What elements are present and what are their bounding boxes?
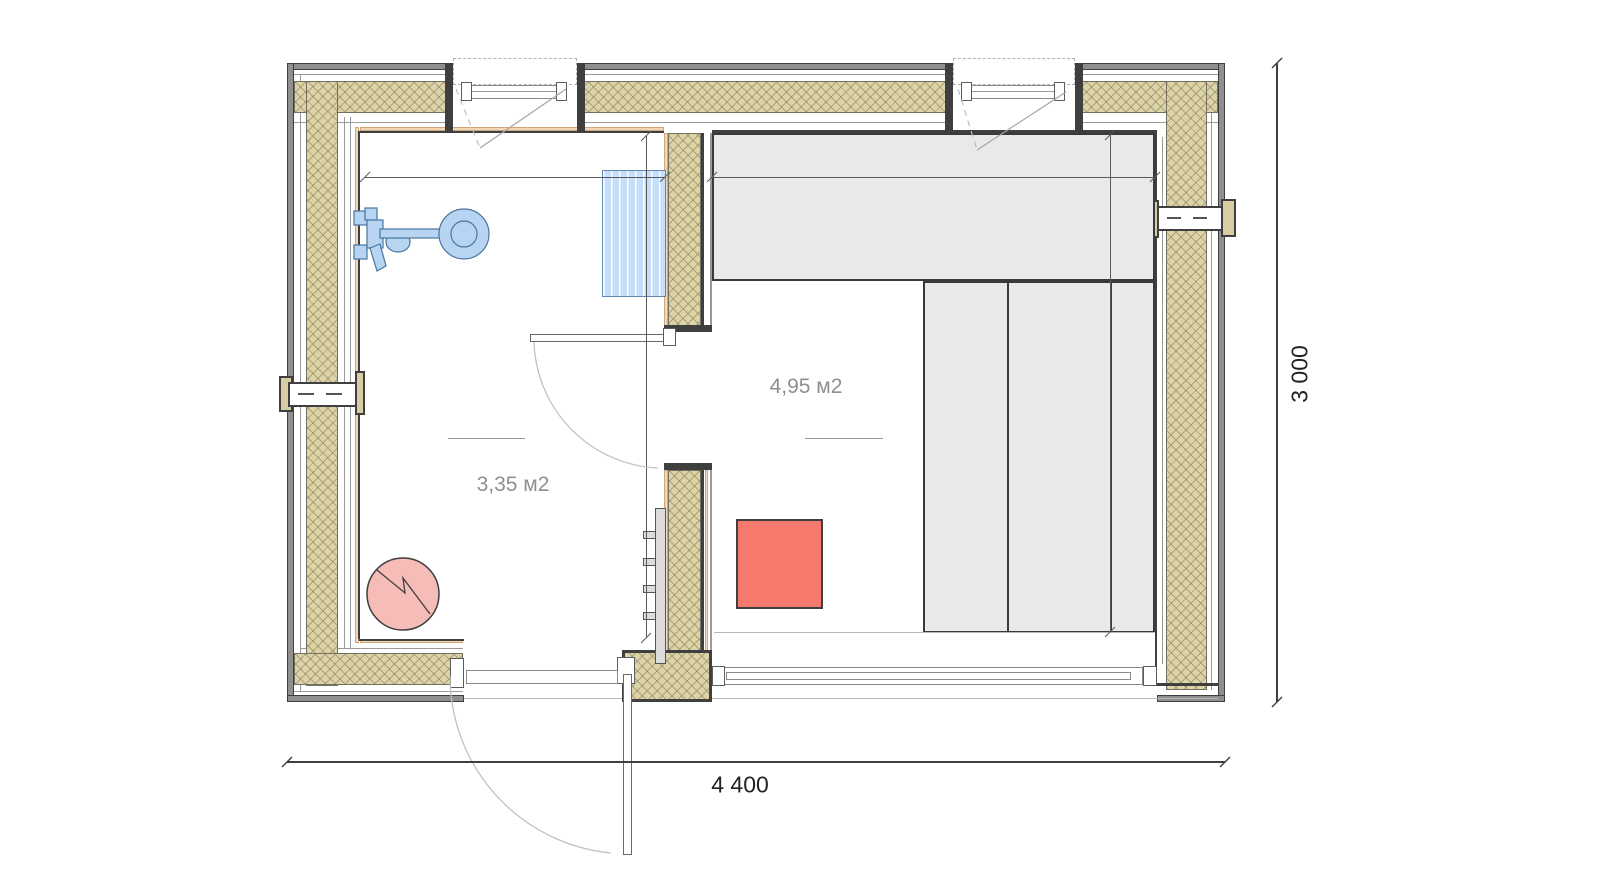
window-opening-dashed-line bbox=[958, 89, 977, 150]
water-heater bbox=[367, 558, 439, 630]
shower-valve bbox=[365, 208, 377, 220]
dimension-width-value: 4 400 bbox=[711, 772, 769, 799]
dimension-line-height bbox=[1276, 63, 1278, 702]
room-label-line bbox=[805, 438, 883, 439]
water-heater-icon bbox=[367, 558, 439, 630]
room-area-label-sauna: 4,95 м2 bbox=[770, 375, 843, 399]
interior-dimension-ticks bbox=[360, 130, 1160, 643]
dimension-line-width bbox=[287, 761, 1225, 763]
dimension-height-value: 3 000 bbox=[1287, 345, 1314, 403]
entrance-door-swing-arc bbox=[450, 676, 611, 853]
room-label-line bbox=[448, 438, 525, 439]
shower-head-icon bbox=[439, 209, 489, 259]
dimension-ticks bbox=[282, 58, 1282, 767]
room-area-label-washroom: 3,35 м2 bbox=[477, 473, 550, 497]
window-opening-line bbox=[480, 89, 566, 148]
shower-wall-mount bbox=[354, 245, 367, 259]
floor-plan-canvas: { "plan_title": "Sauna floor plan", "roo… bbox=[0, 0, 1600, 895]
window-opening-line bbox=[977, 92, 1066, 150]
shower-fixture bbox=[354, 208, 489, 271]
shower-lever bbox=[370, 244, 386, 271]
interior-door-swing-arc bbox=[534, 342, 658, 468]
window-opening-dashed-line bbox=[456, 89, 480, 148]
